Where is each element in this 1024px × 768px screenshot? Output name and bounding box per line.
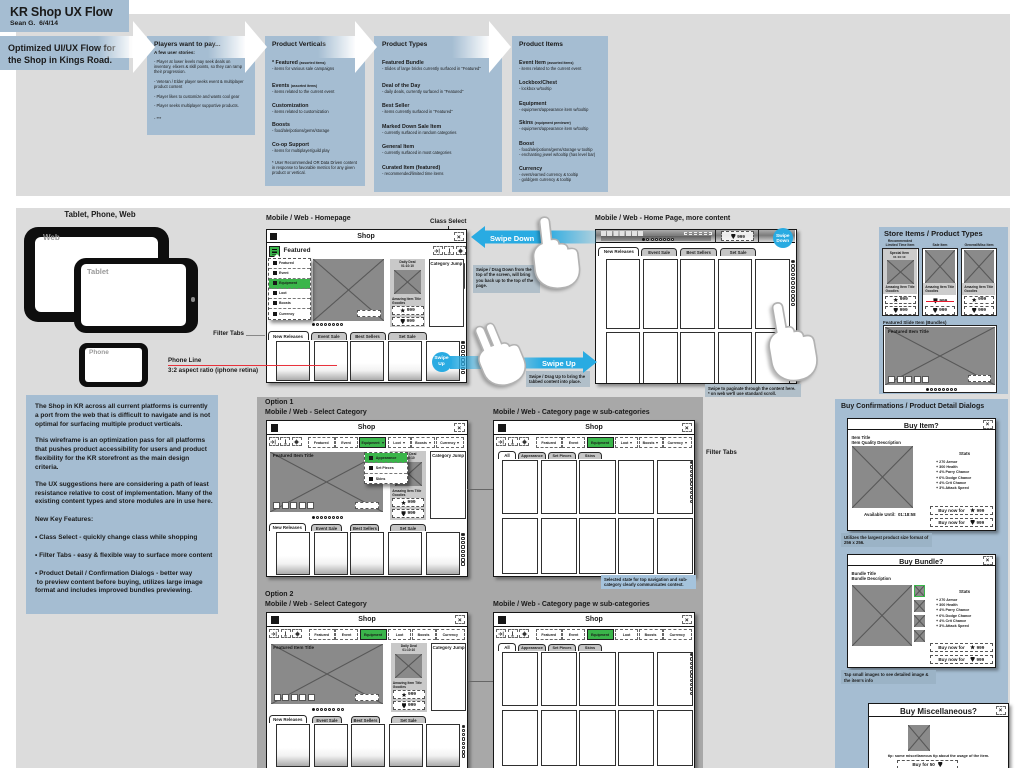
svg-text:Swipe Up: Swipe Up xyxy=(542,359,576,368)
